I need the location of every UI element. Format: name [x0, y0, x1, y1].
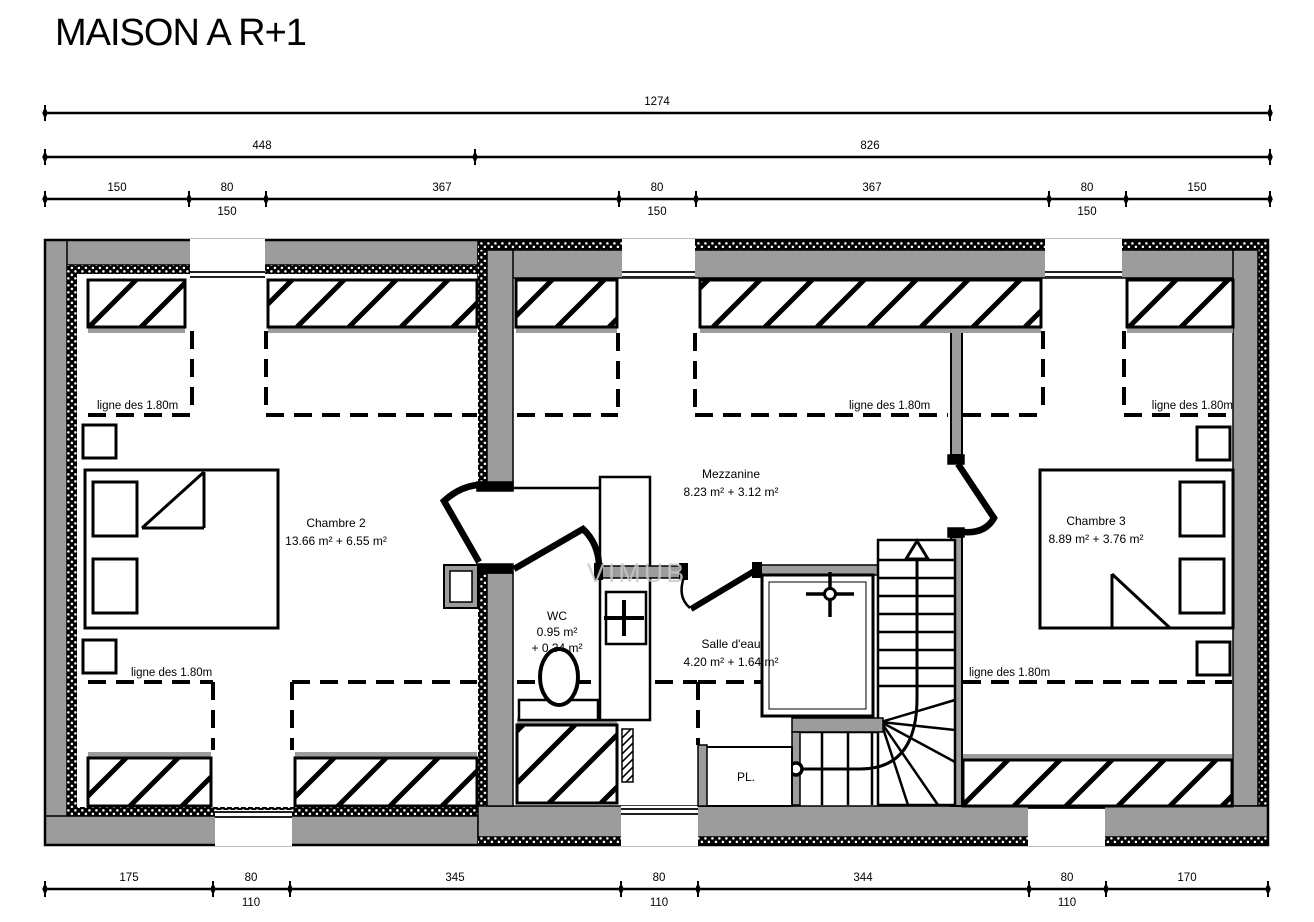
nightstand [1197, 427, 1230, 460]
height-line-connectors-north [192, 331, 1124, 415]
dimension-row-sections: 448 826 [42, 140, 1273, 165]
wall-bottom-right [478, 806, 1268, 837]
dim-top-chain-1: 80 [221, 182, 234, 194]
dim-bottom-chain-4: 344 [853, 872, 873, 884]
dim-top-chain-0: 150 [107, 182, 126, 194]
roof-window [517, 718, 617, 803]
roof-window [516, 280, 617, 333]
dim-top-chain-5: 80 [1081, 182, 1094, 194]
floor-plan-page: MAISON A R+1 1274 [0, 0, 1314, 922]
wall-central-upper [487, 250, 513, 490]
dimension-row-total: 1274 [42, 96, 1273, 121]
label-placard: PL. [737, 770, 755, 784]
label-chambre-3-area: 8.89 m² + 3.76 m² [1048, 532, 1143, 546]
watermark: VIMUB [587, 558, 688, 588]
nightstand [83, 425, 116, 458]
pillow [1180, 559, 1224, 613]
door-chambre-3 [958, 464, 994, 532]
dim-top-chain-4: 367 [862, 182, 881, 194]
dim-top-window-1: 150 [647, 206, 666, 218]
insulation-central-upper [478, 250, 487, 490]
label-salle-eau-area: 4.20 m² + 1.64 m² [683, 655, 778, 669]
label-chambre-2-area: 13.66 m² + 6.55 m² [285, 534, 387, 548]
dim-top-chain-2: 367 [432, 182, 451, 194]
wall-top-right [478, 250, 1268, 278]
label-wc: WC [547, 609, 567, 623]
label-wc-area: 0.95 m² [537, 625, 578, 639]
wall-left [45, 240, 67, 845]
shower-drain-icon [825, 589, 836, 600]
shower-room [760, 565, 878, 716]
radiator [622, 729, 633, 782]
dim-bottom-chain-3: 80 [653, 872, 666, 884]
dimension-row-top-chain: 150 80 367 80 367 80 150 150 150 150 [42, 182, 1273, 218]
insulation-right [1258, 240, 1268, 845]
dim-top-total: 1274 [644, 96, 670, 108]
bed-chambre-2 [83, 425, 278, 673]
roof-window [88, 752, 211, 806]
nightstand [1197, 642, 1230, 675]
wall-cap [948, 455, 964, 464]
dim-top-right-section: 826 [860, 140, 879, 152]
closet-wall [698, 745, 707, 806]
label-wc-area-extra: + 0.34 m² [531, 641, 582, 655]
label-chambre-2: Chambre 2 [306, 516, 366, 530]
bed-chambre-3 [1040, 427, 1233, 675]
wall-cap [948, 528, 964, 537]
dim-bottom-chain-1: 80 [245, 872, 258, 884]
floor-plan-drawing: 1274 448 826 150 80 367 80 367 80 150 15… [0, 0, 1314, 922]
roof-window [1127, 280, 1233, 333]
dim-top-chain-6: 150 [1187, 182, 1206, 194]
door-salle-eau [691, 570, 756, 609]
label-salle-eau: Salle d'eau [701, 637, 760, 651]
dim-bottom-window-2: 110 [1058, 897, 1076, 909]
nightstand [83, 640, 116, 673]
insulation-central-lower [478, 573, 487, 806]
door-chambre-2 [444, 485, 505, 562]
insulation-top-right [478, 240, 1268, 250]
wall-central-lower [487, 573, 513, 806]
wall-right [1233, 250, 1258, 806]
dim-bottom-window-0: 110 [242, 897, 260, 909]
label-height-line-n: ligne des 1.80m [849, 400, 930, 412]
roof-window [88, 280, 185, 333]
wall-chambre3-upper [951, 330, 962, 455]
dim-top-left-section: 448 [252, 140, 271, 152]
label-height-line-nw: ligne des 1.80m [97, 400, 178, 412]
label-mezzanine: Mezzanine [702, 467, 760, 481]
label-chambre-3: Chambre 3 [1066, 514, 1126, 528]
roof-window [268, 280, 477, 333]
toilet-bowl [540, 649, 578, 705]
pillow [93, 559, 137, 613]
shower-tray [762, 575, 873, 716]
dim-top-chain-3: 80 [651, 182, 664, 194]
dimension-row-bottom-chain: 175 80 345 80 344 80 170 110 110 110 [42, 872, 1271, 909]
dim-top-window-2: 150 [1077, 206, 1096, 218]
stair-low-wall [792, 718, 883, 732]
opening-bottom-left [215, 810, 292, 846]
wall-niche [444, 565, 478, 608]
roof-window [700, 280, 1041, 333]
dim-bottom-chain-0: 175 [119, 872, 138, 884]
label-height-line-ne: ligne des 1.80m [1152, 400, 1233, 412]
label-mezzanine-area: 8.23 m² + 3.12 m² [683, 485, 778, 499]
label-height-line-sw: ligne des 1.80m [131, 667, 212, 679]
dim-bottom-chain-6: 170 [1177, 872, 1196, 884]
dim-bottom-chain-5: 80 [1061, 872, 1074, 884]
insulation-left [67, 274, 77, 807]
label-height-line-se: ligne des 1.80m [969, 667, 1050, 679]
opening-top-left [190, 239, 265, 275]
opening-bottom-middle [621, 806, 698, 846]
insulation-top-left [67, 265, 478, 274]
pillow [93, 482, 137, 536]
pillow [1180, 482, 1224, 536]
roof-window [295, 752, 477, 806]
dim-bottom-window-1: 110 [650, 897, 668, 909]
wall-cap [477, 564, 513, 573]
dim-top-window-0: 150 [217, 206, 236, 218]
roof-window [963, 754, 1232, 806]
dim-bottom-chain-2: 345 [445, 872, 464, 884]
